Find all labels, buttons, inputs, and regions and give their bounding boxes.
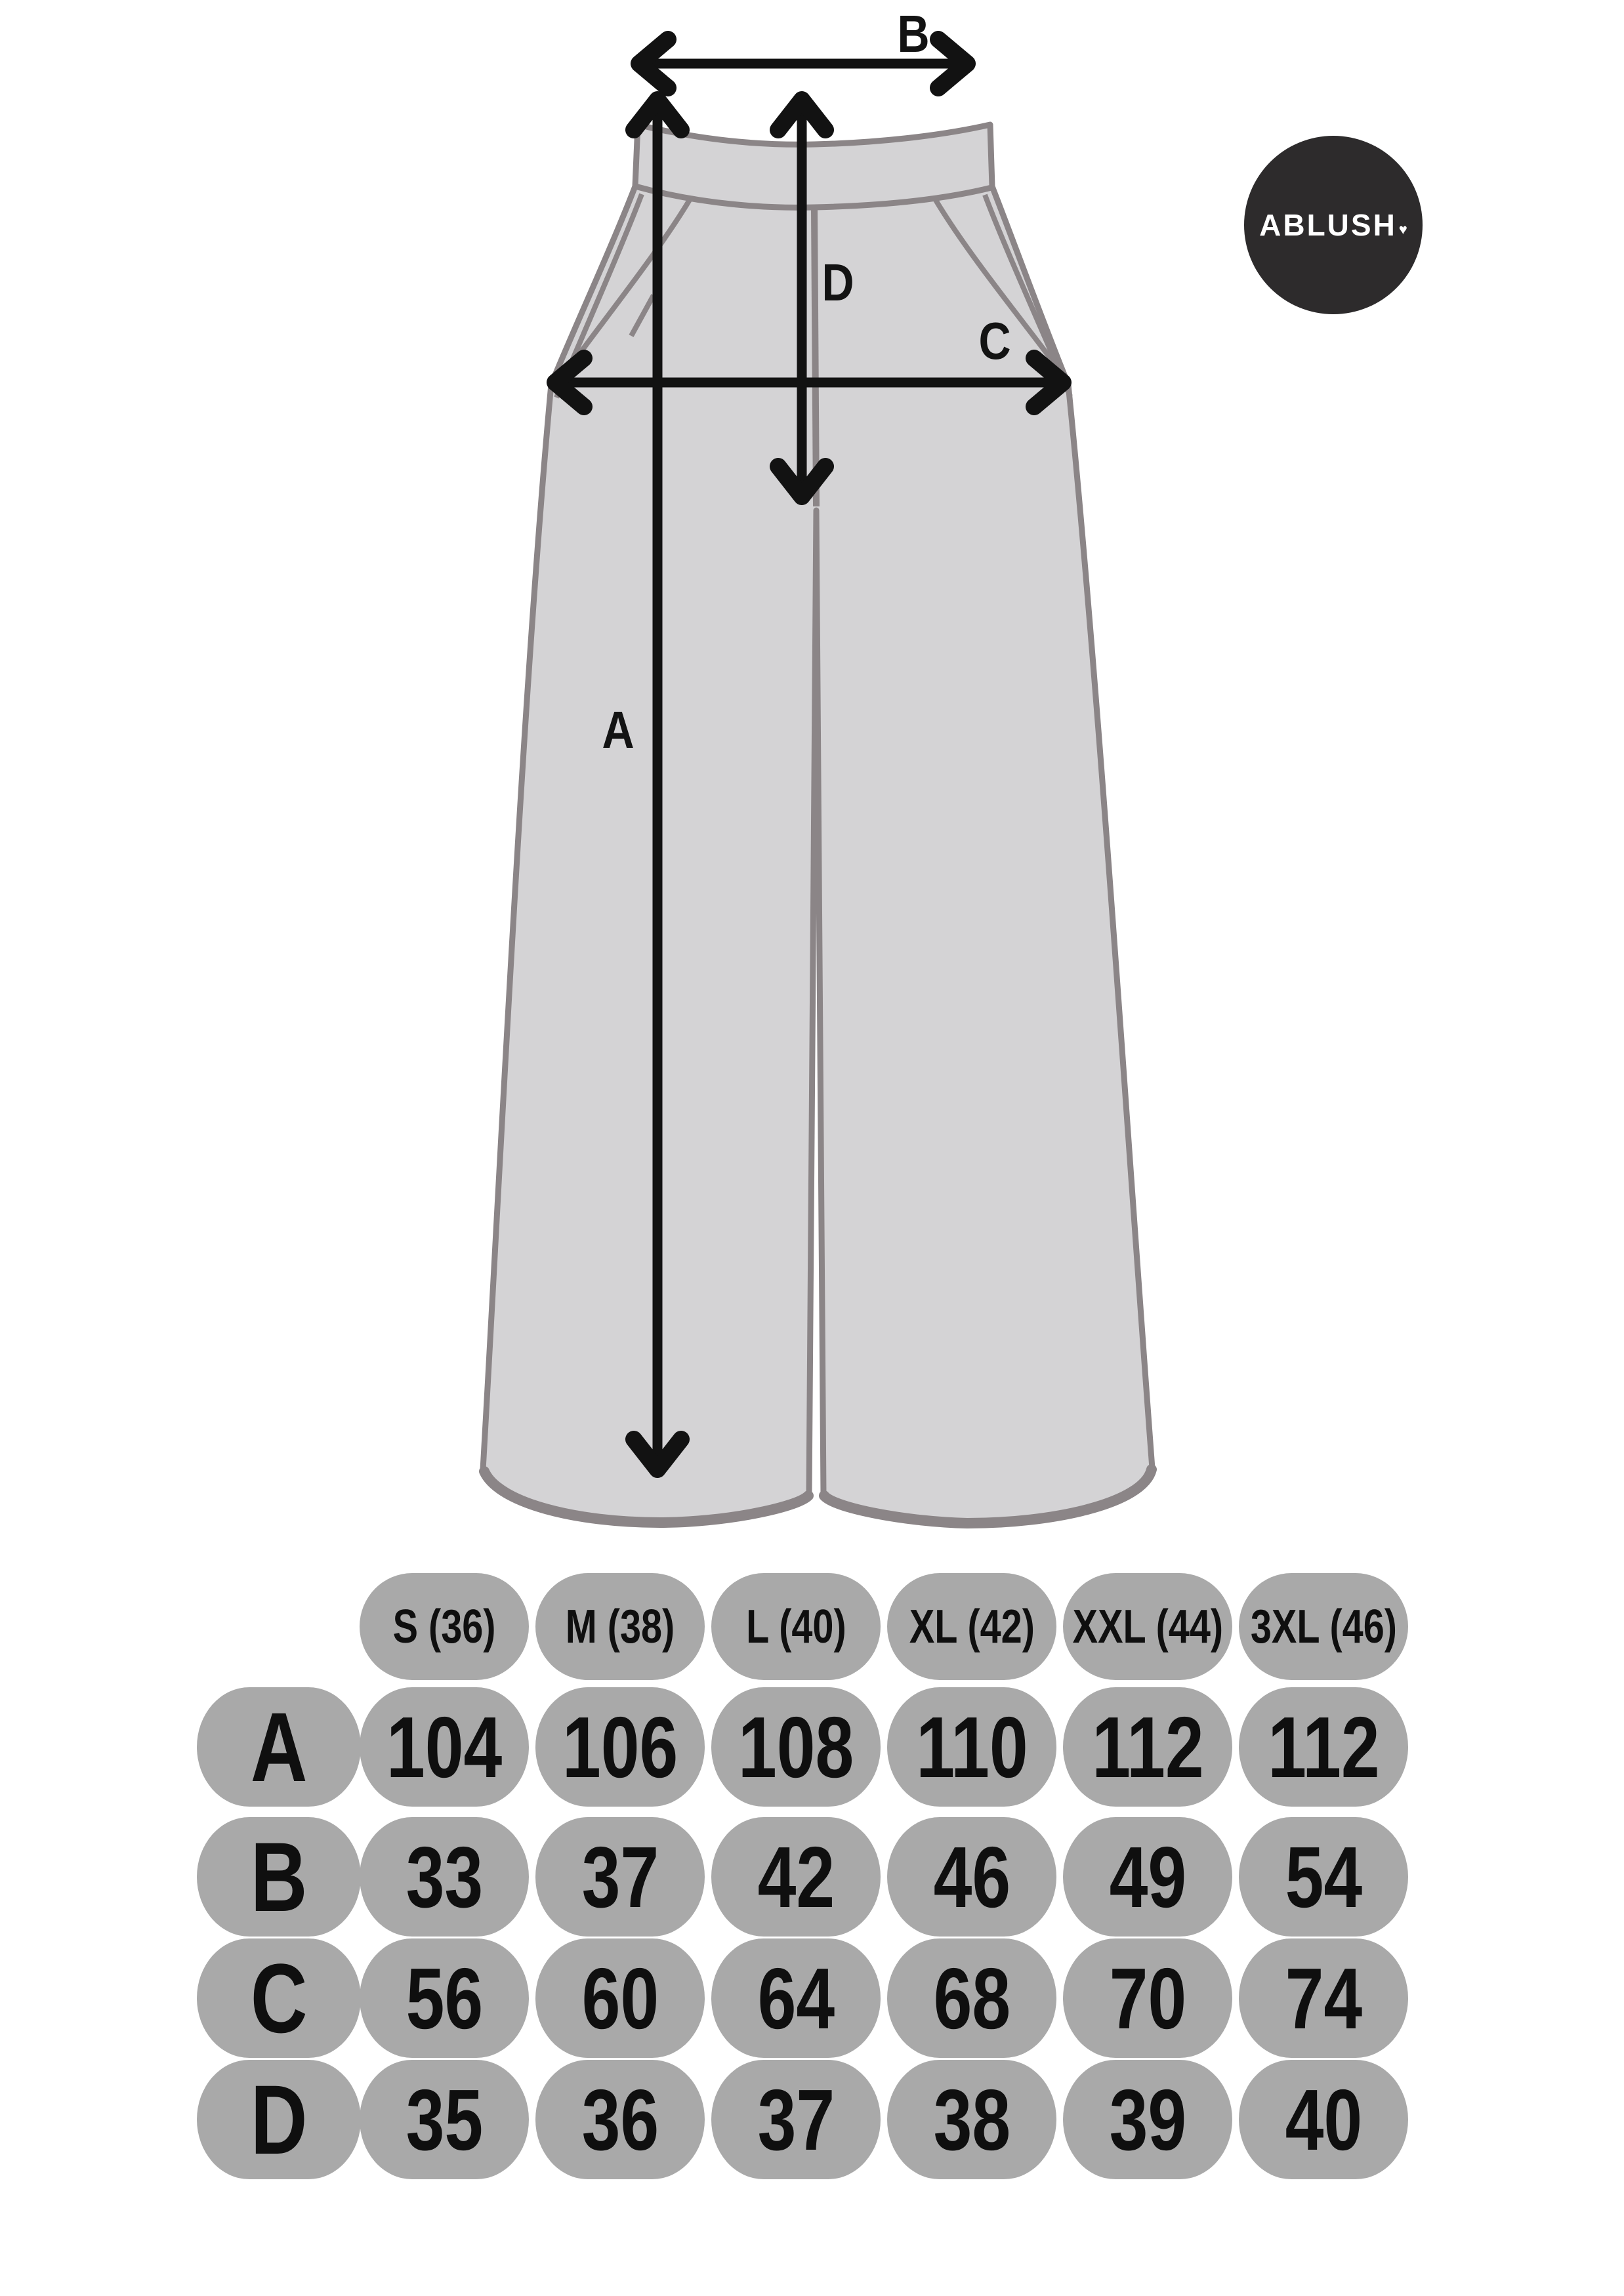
brand-logo: ABLUSH ♥	[1244, 136, 1423, 314]
size-value: 112	[1268, 1698, 1379, 1797]
row-label-pill: B	[197, 1817, 361, 1937]
size-value-cell: 37	[535, 1817, 705, 1937]
measure-label-b: B	[897, 4, 929, 64]
size-value-cell: 64	[711, 1938, 881, 2058]
size-value-cell: 112	[1063, 1687, 1232, 1807]
size-value: 37	[757, 2070, 834, 2169]
size-value: 35	[406, 2070, 482, 2169]
size-value: 74	[1285, 1949, 1362, 2048]
size-value: 56	[406, 1949, 482, 2048]
size-value-cell: 70	[1063, 1938, 1232, 2058]
size-column-header: XL (42)	[887, 1573, 1056, 1680]
size-value: 38	[933, 2070, 1010, 2169]
size-value-cell: 56	[360, 1938, 529, 2058]
size-value: 36	[581, 2070, 658, 2169]
size-value: 40	[1285, 2070, 1362, 2169]
size-table-row: 35 36 37 38 39 40	[360, 2060, 1408, 2179]
size-table-header-row: S (36) M (38) L (40) XL (42) XXL (44) 3X…	[360, 1573, 1408, 1680]
size-value-cell: 60	[535, 1938, 705, 2058]
size-value: 68	[933, 1949, 1010, 2048]
brand-logo-text: ABLUSH	[1259, 207, 1397, 243]
size-value: 46	[933, 1828, 1010, 1927]
size-value-cell: 108	[711, 1687, 881, 1807]
size-value-cell: 68	[887, 1938, 1056, 2058]
size-column-header-label: M (38)	[566, 1600, 675, 1654]
size-value-cell: 46	[887, 1817, 1056, 1937]
size-column-header: S (36)	[360, 1573, 529, 1680]
size-value: 60	[581, 1949, 658, 2048]
row-label: D	[251, 2063, 308, 2177]
size-column-header-label: XL (42)	[909, 1600, 1035, 1654]
size-table-row: 33 37 42 46 49 54	[360, 1817, 1408, 1937]
size-value: 42	[757, 1828, 834, 1927]
size-value-cell: 74	[1239, 1938, 1408, 2058]
size-value: 70	[1109, 1949, 1186, 2048]
size-column-header: L (40)	[711, 1573, 881, 1680]
row-label-pill: D	[197, 2060, 361, 2179]
size-value: 54	[1285, 1828, 1362, 1927]
measure-label-a: A	[602, 700, 634, 760]
size-value-cell: 49	[1063, 1817, 1232, 1937]
size-value: 37	[581, 1828, 658, 1927]
row-label-pill: A	[197, 1687, 361, 1807]
size-value: 106	[562, 1698, 678, 1797]
size-value-cell: 112	[1239, 1687, 1408, 1807]
row-label: A	[251, 1691, 308, 1804]
size-value: 64	[757, 1949, 834, 2048]
center-seam	[814, 209, 816, 506]
size-guide-page: B A D C ABLUSH ♥ S (36) M (38) L (40) XL…	[0, 0, 1624, 2296]
heart-icon: ♥	[1399, 221, 1407, 238]
size-value: 112	[1092, 1698, 1203, 1797]
size-value: 110	[916, 1698, 1028, 1797]
size-value-cell: 104	[360, 1687, 529, 1807]
size-column-header: 3XL (46)	[1239, 1573, 1408, 1680]
size-column-header-label: XXL (44)	[1072, 1600, 1222, 1654]
row-label: C	[251, 1942, 308, 2055]
size-value: 108	[738, 1698, 854, 1797]
size-value-cell: 54	[1239, 1817, 1408, 1937]
size-value: 104	[386, 1698, 502, 1797]
size-value-cell: 35	[360, 2060, 529, 2179]
size-value: 39	[1109, 2070, 1186, 2169]
size-column-header-label: L (40)	[746, 1600, 846, 1654]
size-column-header-label: S (36)	[393, 1600, 496, 1654]
measure-label-c: C	[978, 311, 1010, 371]
size-value: 49	[1109, 1828, 1186, 1927]
size-table-row: 56 60 64 68 70 74	[360, 1938, 1408, 2058]
size-value-cell: 110	[887, 1687, 1056, 1807]
size-value: 33	[406, 1828, 482, 1927]
size-table-row: 104 106 108 110 112 112	[360, 1687, 1408, 1807]
size-value-cell: 39	[1063, 2060, 1232, 2179]
row-label: B	[251, 1820, 308, 1934]
size-value-cell: 42	[711, 1817, 881, 1937]
size-value-cell: 38	[887, 2060, 1056, 2179]
row-label-pill: C	[197, 1938, 361, 2058]
size-column-header-label: 3XL (46)	[1250, 1600, 1396, 1654]
size-column-header: M (38)	[535, 1573, 705, 1680]
size-value-cell: 37	[711, 2060, 881, 2179]
measure-label-d: D	[822, 253, 854, 313]
size-value-cell: 33	[360, 1817, 529, 1937]
size-value-cell: 40	[1239, 2060, 1408, 2179]
size-value-cell: 106	[535, 1687, 705, 1807]
size-column-header: XXL (44)	[1063, 1573, 1232, 1680]
size-value-cell: 36	[535, 2060, 705, 2179]
